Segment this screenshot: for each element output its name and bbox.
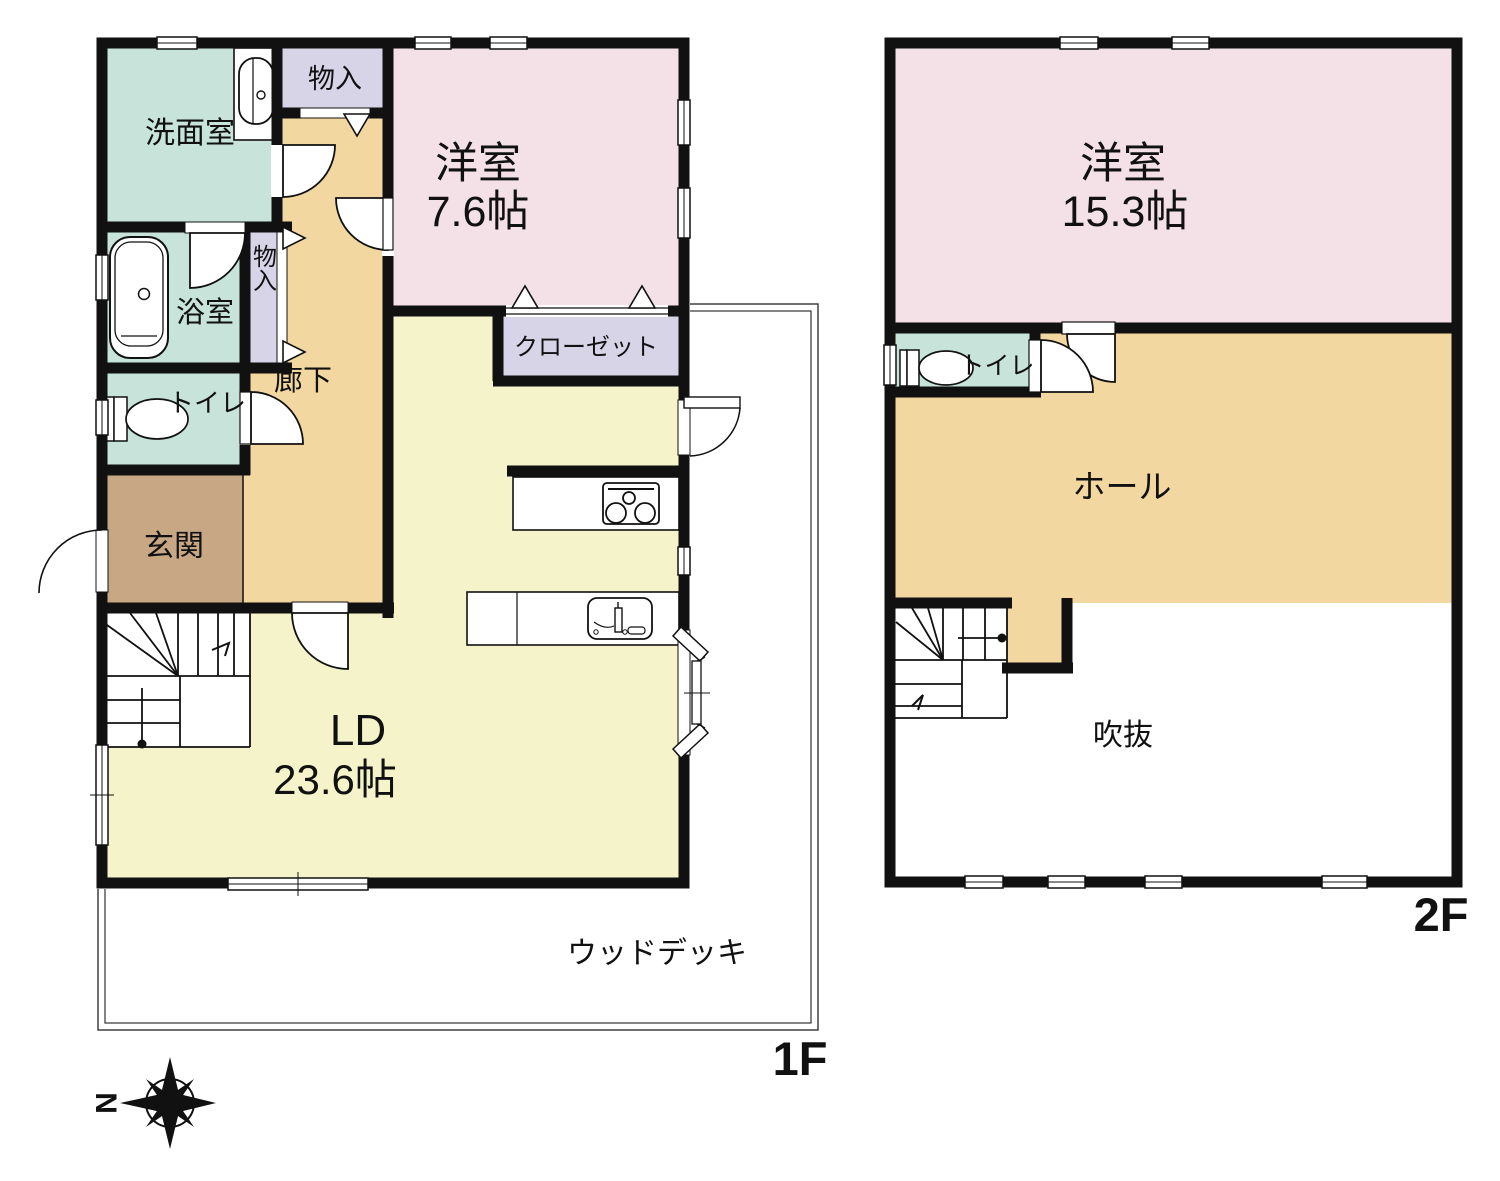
compass-rose: N [91, 1057, 217, 1149]
entrance-front-door [39, 530, 108, 593]
window [415, 37, 451, 49]
floor-2f: 洋室 15.3帖 トイレ ホール 吹抜 2F [884, 37, 1468, 941]
north-label: N [91, 1092, 124, 1114]
window [96, 400, 108, 435]
window [1145, 876, 1182, 888]
window [96, 255, 108, 300]
storage-top-label: 物入 [308, 64, 362, 94]
window [678, 188, 690, 238]
closet-label: クローゼット [514, 334, 658, 361]
floor-label-1f: 1F [773, 1032, 828, 1085]
bath-label: 浴室 [176, 296, 234, 329]
kitchen-counter-stove [513, 477, 679, 530]
window [965, 876, 1003, 888]
western-room-name-1f: 洋室 [435, 140, 521, 188]
window [157, 37, 197, 49]
f2-western-room [891, 43, 1457, 328]
window [884, 345, 896, 385]
floorplan-drawing: 洗面室 物入 洋室 7.6帖 浴室 物入 廊下 クローゼット トイレ 玄関 LD… [0, 0, 1500, 1181]
wood-deck-label: ウッドデッキ [567, 937, 747, 970]
ld-size-label: 23.6帖 [273, 756, 397, 803]
western-room-size-1f: 7.6帖 [427, 188, 530, 236]
stove-fixture [603, 483, 659, 524]
ld-name-label: LD [330, 706, 386, 755]
toilet-label-1f: トイレ [168, 388, 246, 418]
window [1048, 876, 1085, 888]
window [678, 100, 690, 145]
hallway-label: 廊下 [274, 364, 332, 397]
floorplan-page: 洗面室 物入 洋室 7.6帖 浴室 物入 廊下 クローゼット トイレ 玄関 LD… [0, 0, 1500, 1181]
f2-void [891, 603, 1457, 877]
entrance-label: 玄関 [144, 530, 204, 563]
floor-label-2f: 2F [1414, 888, 1469, 941]
western-room-size-2f: 15.3帖 [1062, 188, 1189, 236]
void-label: 吹抜 [1093, 719, 1153, 752]
storage-side-label: 物入 [249, 244, 277, 292]
window [678, 547, 690, 575]
window [1322, 876, 1367, 888]
kitchen-sink-fixture [588, 598, 652, 639]
window [1172, 37, 1209, 49]
western-room-name-2f: 洋室 [1080, 140, 1166, 188]
toilet-label-2f: トイレ [959, 352, 1034, 380]
f1-stairs-area [102, 608, 250, 748]
f1-western-room [388, 43, 684, 311]
washroom-label: 洗面室 [145, 117, 235, 150]
compass-star [120, 1057, 216, 1149]
kitchen-island-sink [467, 592, 679, 645]
window [1060, 37, 1098, 49]
window [490, 37, 527, 49]
hall-label: ホール [1073, 468, 1172, 505]
bathtub-fixture [110, 237, 168, 358]
f2-hall-notch [1007, 598, 1067, 668]
